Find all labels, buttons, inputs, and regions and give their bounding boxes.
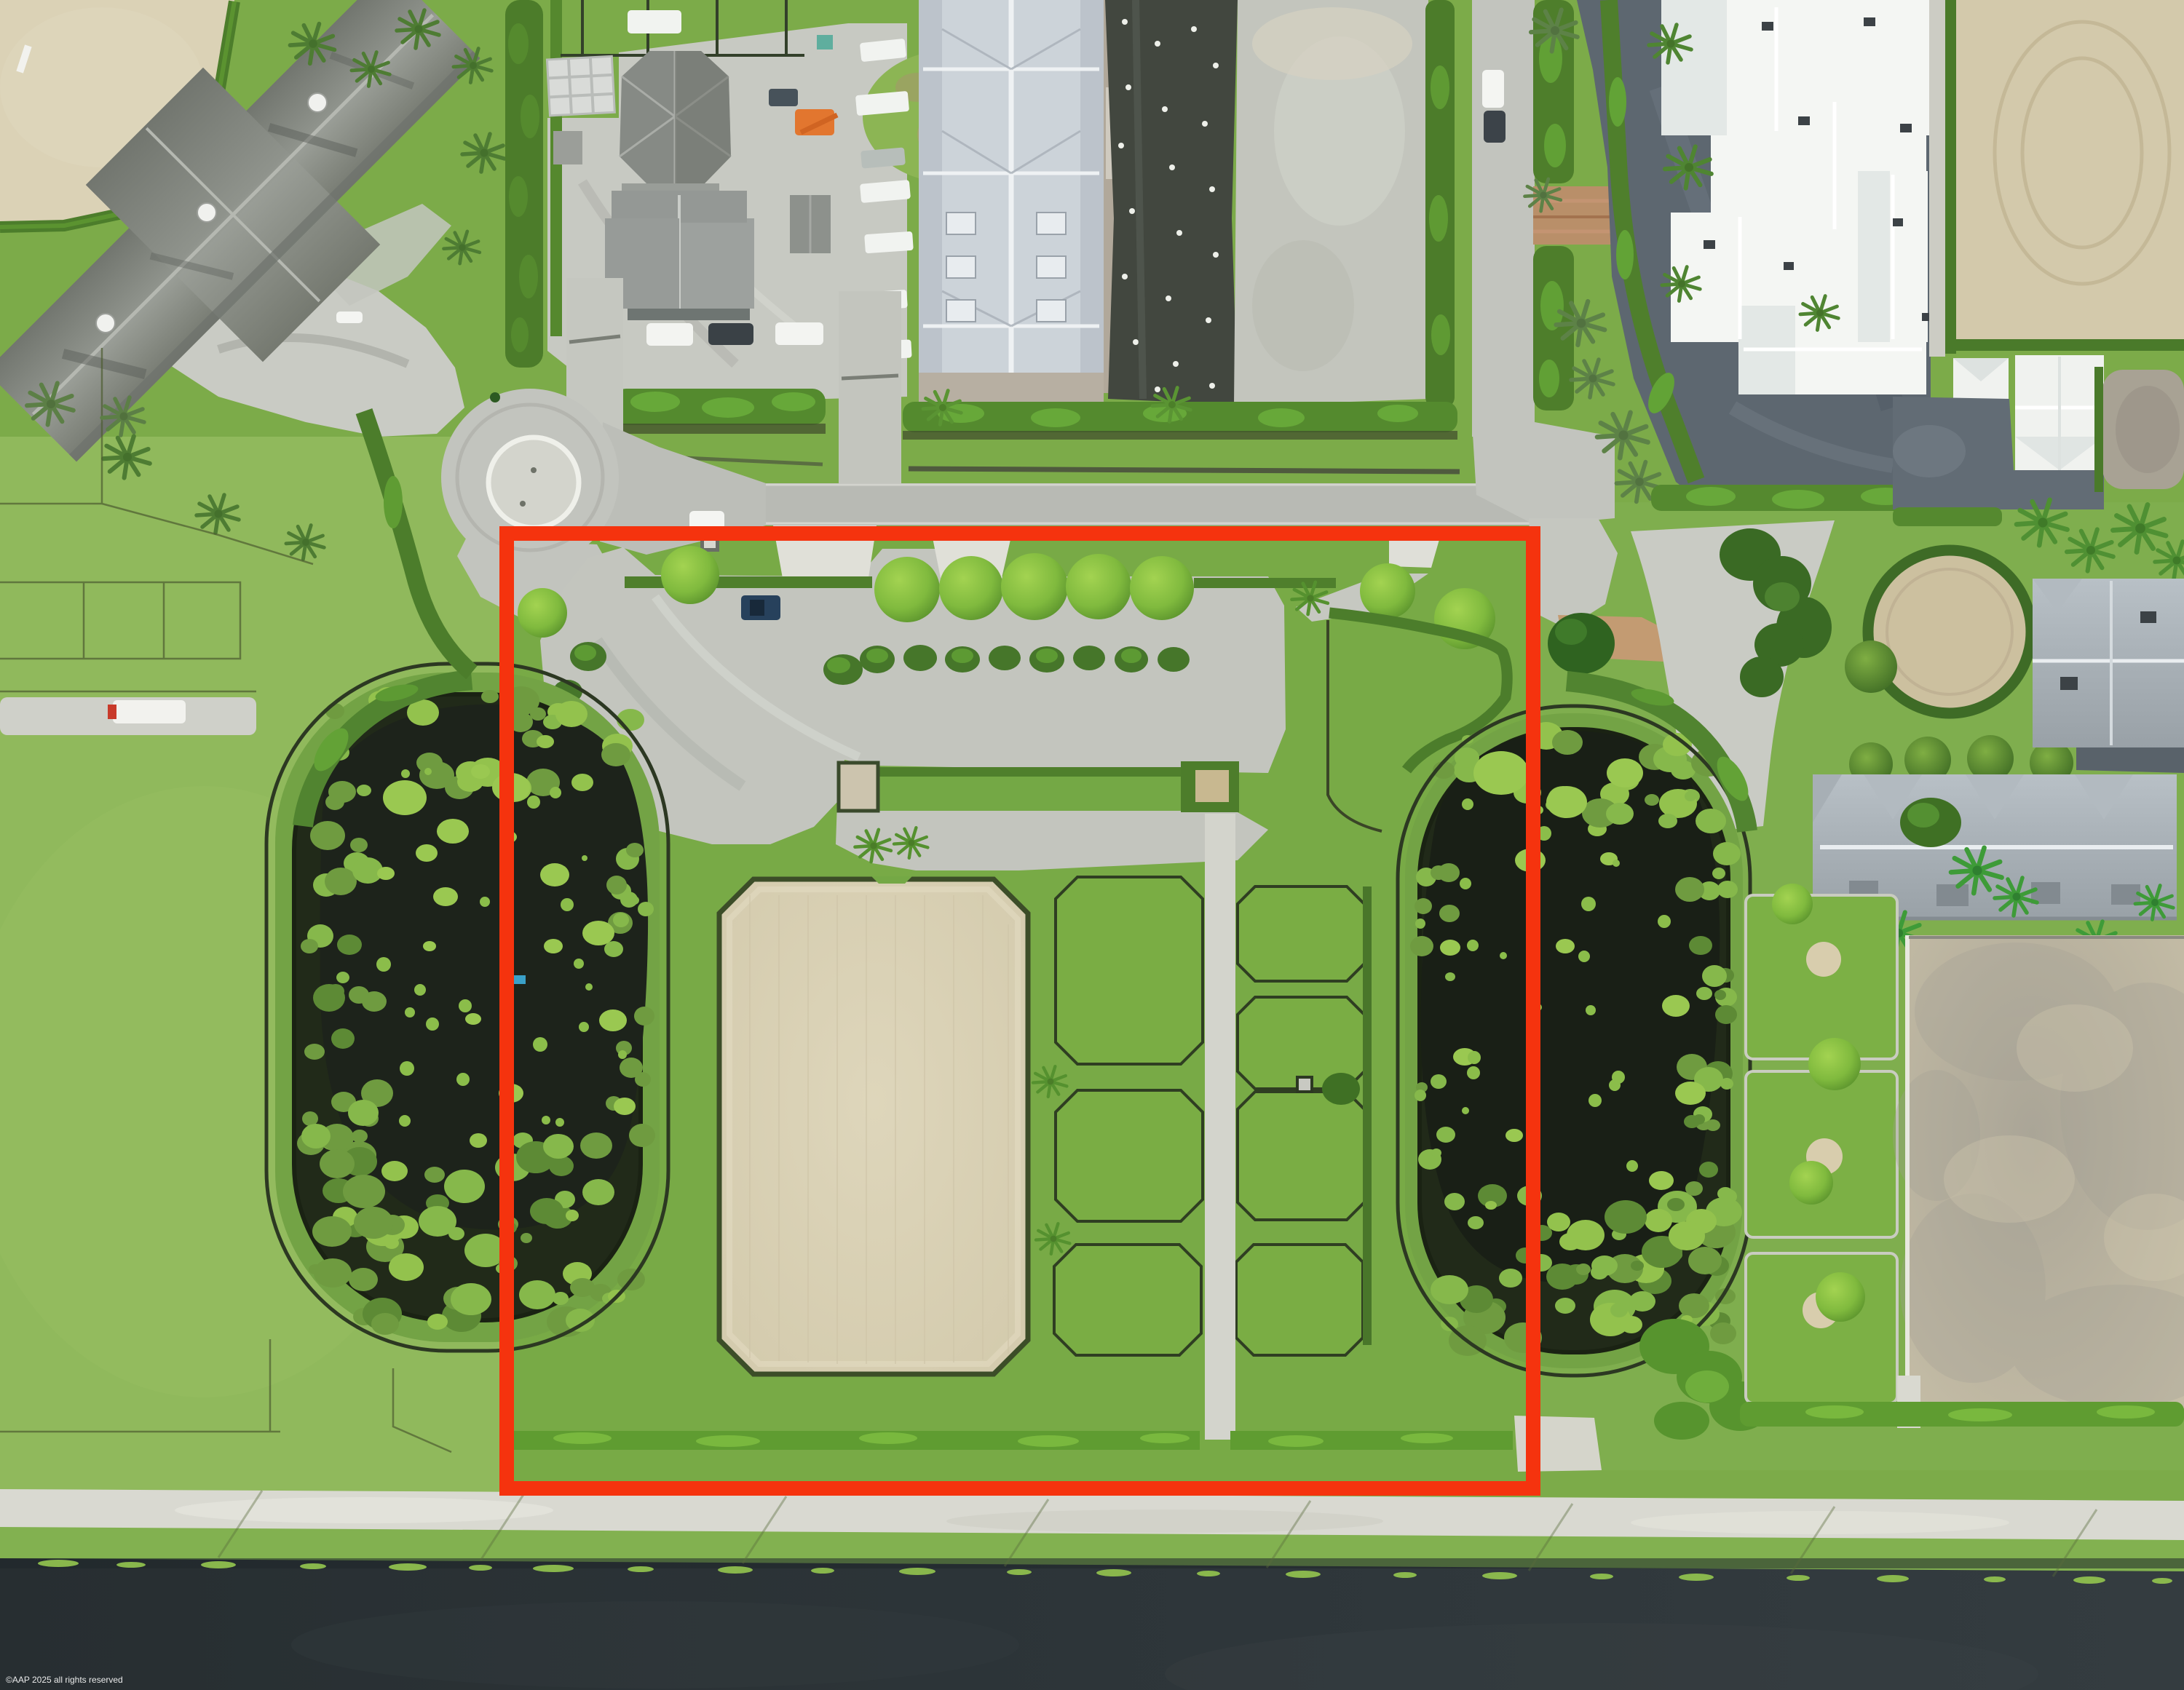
svg-text:©AAP 2025 all rights reserved: ©AAP 2025 all rights reserved <box>6 1675 123 1685</box>
